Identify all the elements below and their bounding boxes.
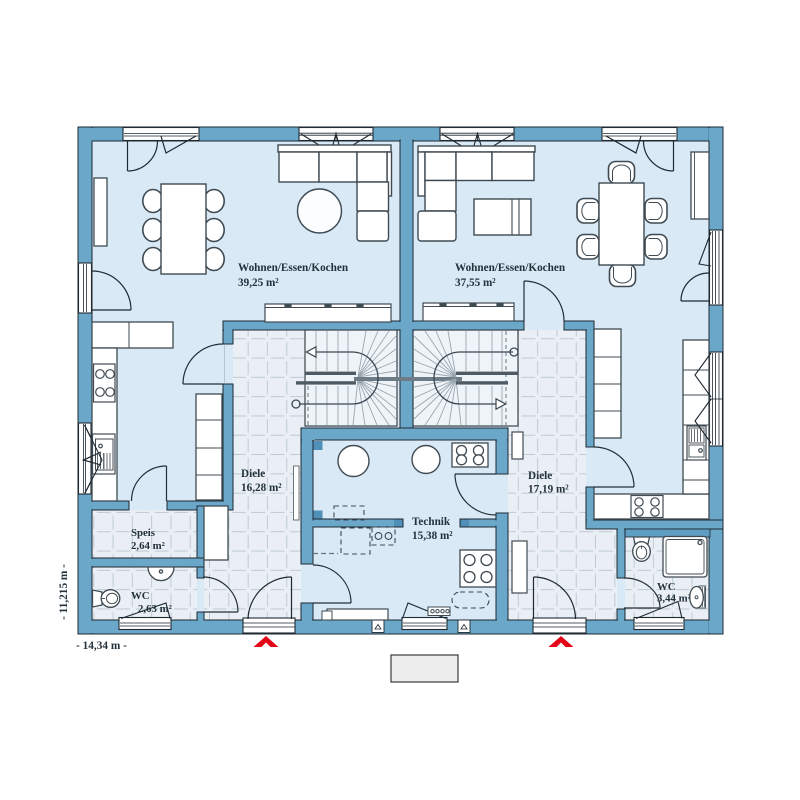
svg-text:Technik: Technik [412, 516, 451, 528]
svg-text:15,38 m²: 15,38 m² [412, 530, 453, 542]
svg-text:- 14,34 m -: - 14,34 m - [76, 640, 127, 652]
svg-text:2,64 m²: 2,64 m² [131, 540, 165, 552]
svg-text:WC: WC [657, 581, 676, 593]
svg-text:16,28 m²: 16,28 m² [241, 482, 282, 494]
svg-text:- 11,215 m -: - 11,215 m - [58, 564, 70, 620]
svg-text:37,55 m²: 37,55 m² [455, 277, 496, 289]
svg-text:Wohnen/Essen/Kochen: Wohnen/Essen/Kochen [238, 262, 349, 274]
svg-text:3,44 m²: 3,44 m² [657, 593, 691, 605]
svg-text:Diele: Diele [241, 468, 265, 480]
svg-text:17,19 m²: 17,19 m² [528, 484, 569, 496]
svg-text:39,25 m²: 39,25 m² [238, 277, 279, 289]
svg-text:2,63 m²: 2,63 m² [138, 603, 172, 615]
svg-text:Speis: Speis [131, 527, 155, 539]
svg-text:Diele: Diele [528, 470, 552, 482]
svg-text:Wohnen/Essen/Kochen: Wohnen/Essen/Kochen [455, 262, 566, 274]
svg-text:WC: WC [131, 590, 150, 602]
